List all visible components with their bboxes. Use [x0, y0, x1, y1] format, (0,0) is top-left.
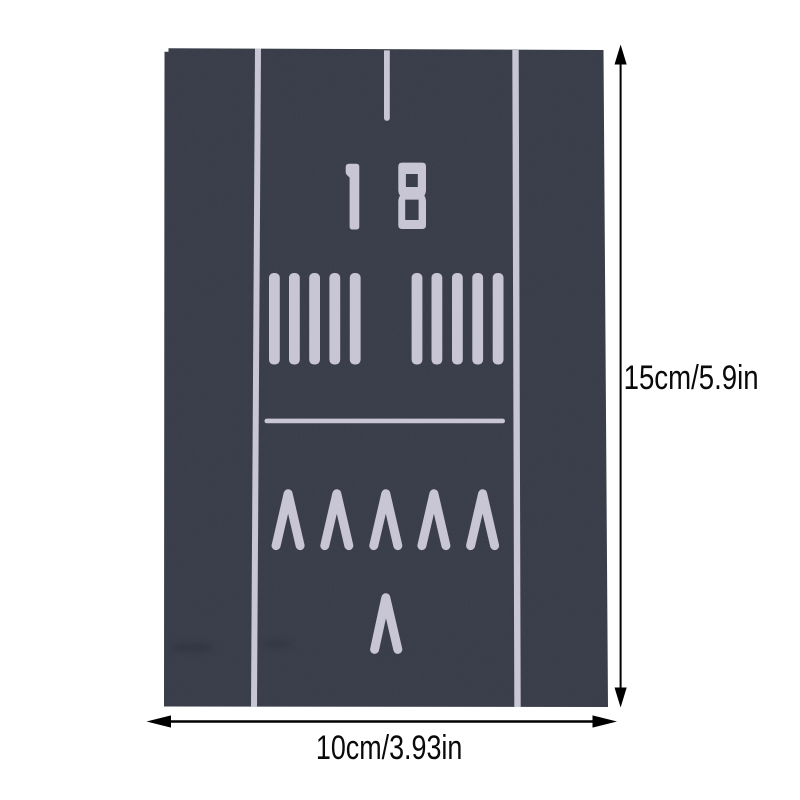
svg-text:10cm/3.93in: 10cm/3.93in — [316, 729, 462, 767]
svg-text:15cm/5.9in: 15cm/5.9in — [624, 358, 759, 396]
